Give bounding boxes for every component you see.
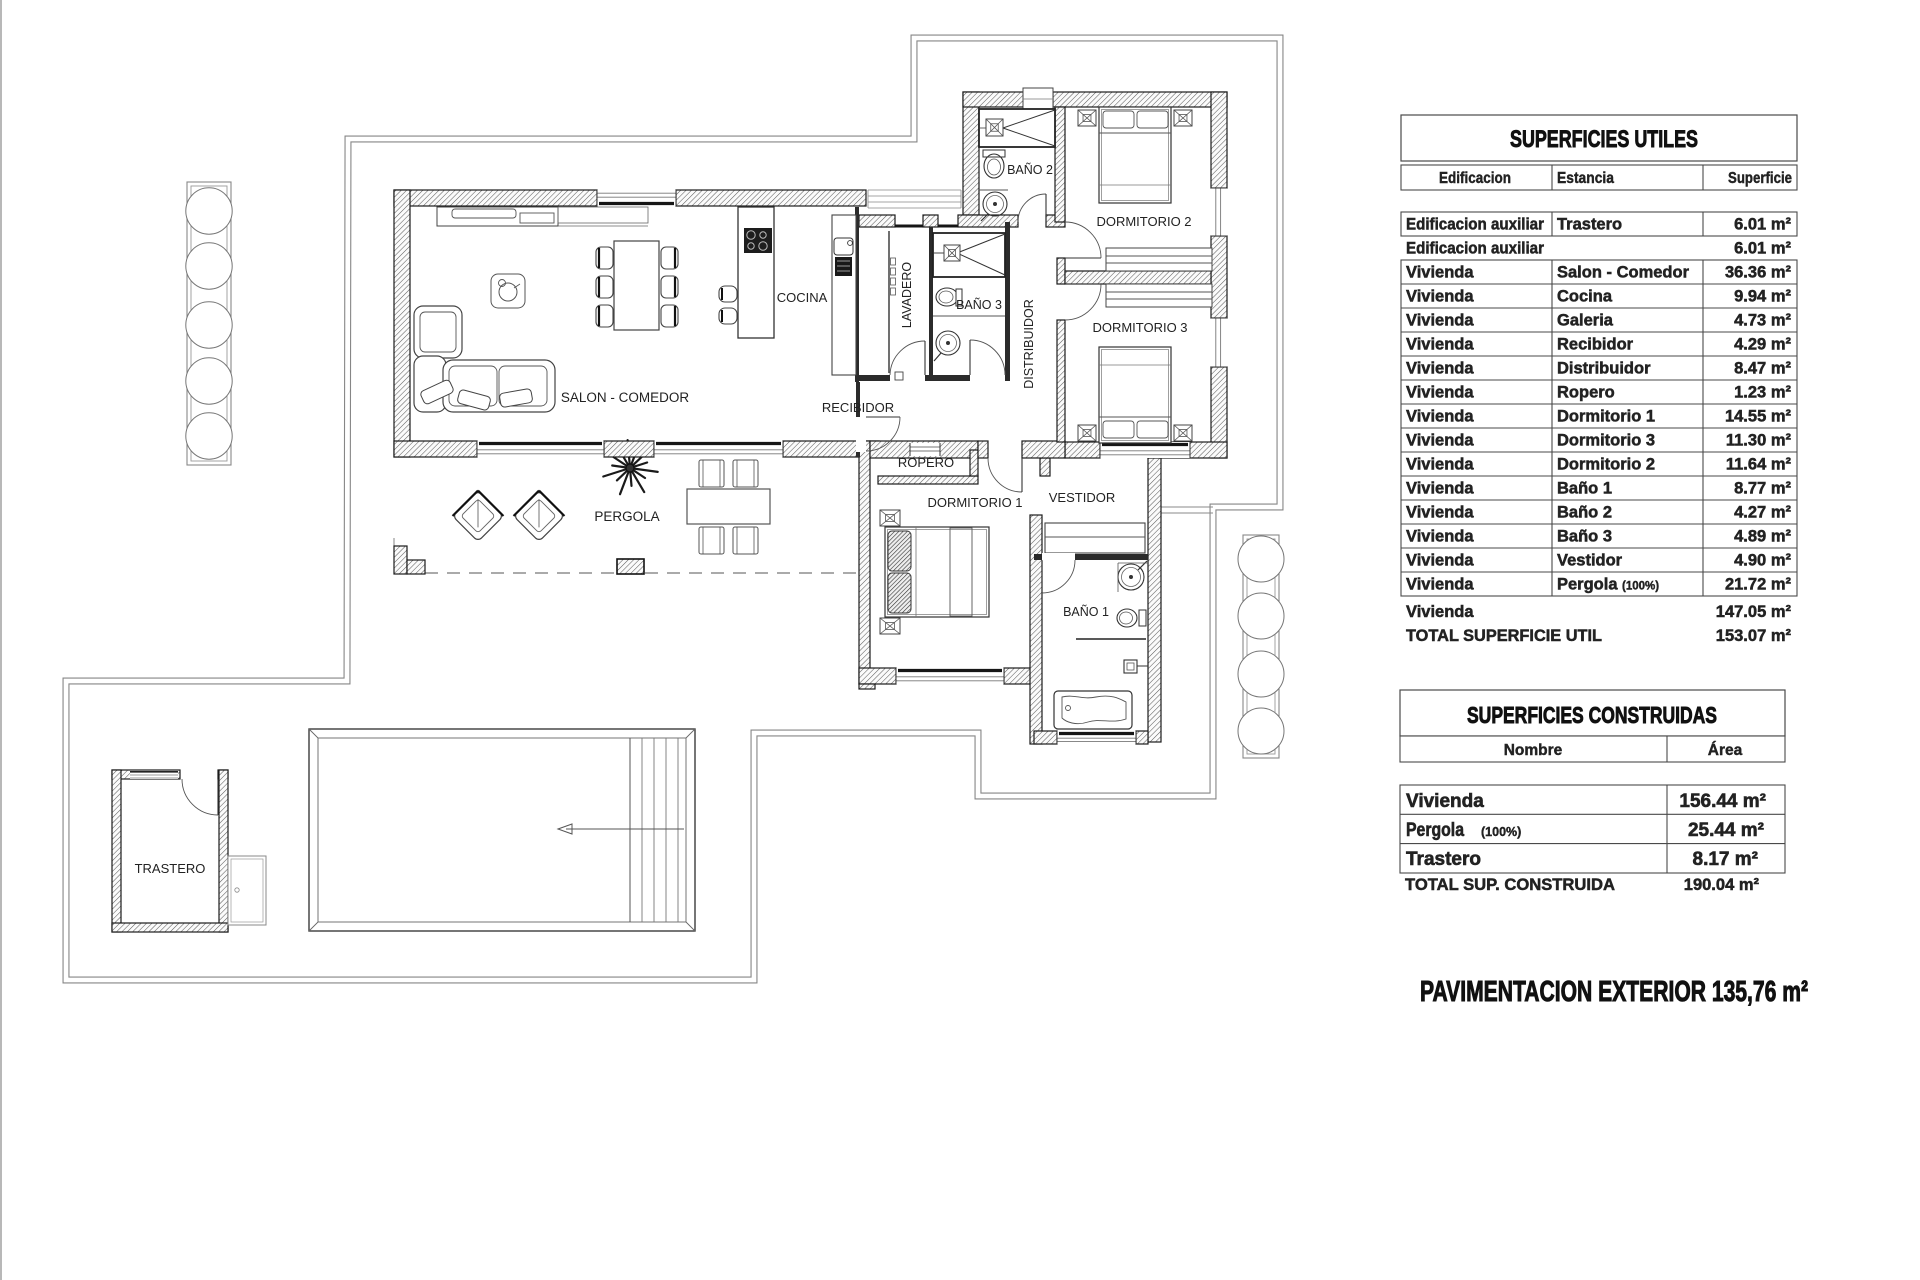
svg-text:(100%): (100%) (1622, 581, 1659, 593)
svg-text:RECIBIDOR: RECIBIDOR (822, 400, 894, 415)
svg-text:Baño 1: Baño 1 (1557, 480, 1612, 498)
svg-text:Dormitorio 3: Dormitorio 3 (1557, 432, 1655, 450)
svg-text:Cocina: Cocina (1557, 288, 1613, 306)
svg-text:SUPERFICIES CONSTRUIDAS: SUPERFICIES CONSTRUIDAS (1467, 702, 1717, 728)
svg-text:Pergola: Pergola (1557, 576, 1618, 594)
svg-text:Galeria: Galeria (1557, 312, 1614, 330)
svg-text:Área: Área (1708, 742, 1743, 759)
svg-text:25.44 m²: 25.44 m² (1688, 820, 1764, 841)
svg-text:TOTAL SUPERFICIE UTIL: TOTAL SUPERFICIE UTIL (1406, 627, 1602, 645)
svg-text:Edificacion auxiliar: Edificacion auxiliar (1406, 240, 1545, 258)
svg-text:Superficie: Superficie (1728, 170, 1792, 187)
svg-text:6.01 m²: 6.01 m² (1734, 216, 1791, 234)
svg-text:Dormitorio 2: Dormitorio 2 (1557, 456, 1655, 474)
svg-text:Nombre: Nombre (1504, 742, 1563, 759)
svg-text:Vestidor: Vestidor (1557, 552, 1623, 570)
svg-text:Vivienda: Vivienda (1406, 384, 1474, 402)
svg-text:PERGOLA: PERGOLA (594, 509, 659, 524)
svg-text:SALON - COMEDOR: SALON - COMEDOR (561, 390, 690, 405)
svg-text:Distribuidor: Distribuidor (1557, 360, 1651, 378)
svg-text:4.29 m²: 4.29 m² (1734, 336, 1791, 354)
svg-text:ROPERO: ROPERO (898, 455, 954, 470)
svg-text:DORMITORIO 2: DORMITORIO 2 (1096, 214, 1191, 229)
svg-text:9.94 m²: 9.94 m² (1734, 288, 1791, 306)
svg-text:147.05 m²: 147.05 m² (1716, 603, 1792, 621)
svg-text:4.73 m²: 4.73 m² (1734, 312, 1791, 330)
svg-text:8.47 m²: 8.47 m² (1734, 360, 1791, 378)
svg-text:COCINA: COCINA (777, 290, 828, 305)
svg-text:Vivienda: Vivienda (1406, 552, 1474, 570)
svg-text:SUPERFICIES UTILES: SUPERFICIES UTILES (1510, 126, 1698, 153)
svg-text:DORMITORIO 1: DORMITORIO 1 (927, 495, 1022, 510)
svg-text:156.44 m²: 156.44 m² (1679, 791, 1766, 812)
svg-text:Vivienda: Vivienda (1406, 603, 1474, 621)
svg-text:DISTRIBUIDOR: DISTRIBUIDOR (1022, 299, 1036, 389)
svg-text:6.01 m²: 6.01 m² (1734, 240, 1791, 258)
svg-text:LAVADERO: LAVADERO (900, 262, 914, 329)
svg-text:BAÑO 1: BAÑO 1 (1063, 605, 1109, 619)
svg-text:TRASTERO: TRASTERO (135, 861, 206, 876)
svg-text:Trastero: Trastero (1557, 216, 1622, 234)
svg-text:Baño 2: Baño 2 (1557, 504, 1612, 522)
svg-text:Vivienda: Vivienda (1406, 576, 1474, 594)
svg-text:BAÑO 3: BAÑO 3 (956, 298, 1002, 312)
svg-text:1.23 m²: 1.23 m² (1734, 384, 1791, 402)
svg-text:Vivienda: Vivienda (1406, 504, 1474, 522)
svg-text:Pergola: Pergola (1406, 820, 1464, 841)
svg-text:4.27 m²: 4.27 m² (1734, 504, 1791, 522)
svg-text:Edificacion auxiliar: Edificacion auxiliar (1406, 216, 1545, 234)
svg-text:14.55 m²: 14.55 m² (1725, 408, 1792, 426)
svg-text:Vivienda: Vivienda (1406, 528, 1474, 546)
svg-text:Vivienda: Vivienda (1406, 480, 1474, 498)
svg-text:21.72 m²: 21.72 m² (1725, 576, 1792, 594)
svg-text:Ropero: Ropero (1557, 384, 1615, 402)
svg-text:Vivienda: Vivienda (1406, 791, 1484, 812)
svg-text:DORMITORIO 3: DORMITORIO 3 (1092, 320, 1187, 335)
svg-text:Vivienda: Vivienda (1406, 408, 1474, 426)
svg-text:Baño 3: Baño 3 (1557, 528, 1612, 546)
svg-text:190.04 m²: 190.04 m² (1684, 876, 1760, 894)
svg-text:PAVIMENTACION EXTERIOR 135,76: PAVIMENTACION EXTERIOR 135,76 m² (1420, 976, 1808, 1008)
svg-text:TOTAL SUP. CONSTRUIDA: TOTAL SUP. CONSTRUIDA (1405, 876, 1615, 894)
svg-text:Vivienda: Vivienda (1406, 432, 1474, 450)
svg-text:36.36 m²: 36.36 m² (1725, 264, 1792, 282)
svg-text:4.89 m²: 4.89 m² (1734, 528, 1791, 546)
svg-text:11.64 m²: 11.64 m² (1726, 456, 1792, 474)
svg-text:Vivienda: Vivienda (1406, 360, 1474, 378)
svg-text:(100%): (100%) (1481, 825, 1521, 839)
svg-text:Trastero: Trastero (1406, 849, 1481, 870)
svg-text:Edificacion: Edificacion (1439, 170, 1511, 187)
svg-text:Estancia: Estancia (1557, 170, 1614, 187)
svg-text:VESTIDOR: VESTIDOR (1049, 490, 1115, 505)
svg-text:8.17 m²: 8.17 m² (1693, 849, 1758, 870)
svg-text:Vivienda: Vivienda (1406, 456, 1474, 474)
svg-text:Recibidor: Recibidor (1557, 336, 1634, 354)
svg-text:8.77 m²: 8.77 m² (1734, 480, 1791, 498)
svg-text:153.07 m²: 153.07 m² (1716, 627, 1792, 645)
svg-text:11.30 m²: 11.30 m² (1726, 432, 1792, 450)
svg-text:Salon - Comedor: Salon - Comedor (1557, 264, 1690, 282)
svg-text:Vivienda: Vivienda (1406, 336, 1474, 354)
svg-text:Vivienda: Vivienda (1406, 312, 1474, 330)
svg-text:4.90 m²: 4.90 m² (1734, 552, 1791, 570)
svg-text:BAÑO 2: BAÑO 2 (1007, 163, 1053, 177)
svg-text:Dormitorio 1: Dormitorio 1 (1557, 408, 1655, 426)
svg-text:Vivienda: Vivienda (1406, 264, 1474, 282)
svg-text:Vivienda: Vivienda (1406, 288, 1474, 306)
